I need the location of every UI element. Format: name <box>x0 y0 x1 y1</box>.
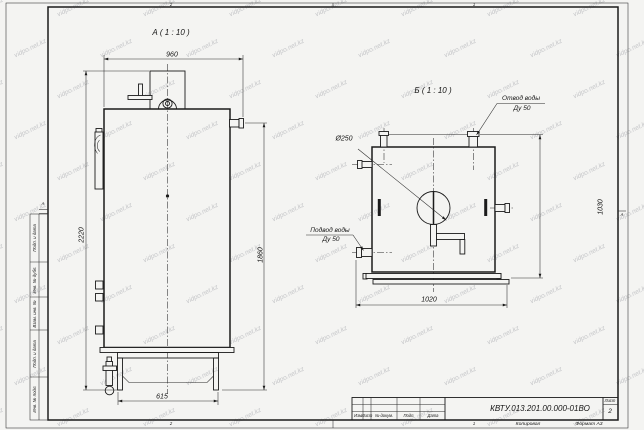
callout-inlet-line1: Подвод воды <box>310 227 349 234</box>
zone-bottom-left: 2 <box>170 422 172 426</box>
callout-outlet-line2: Ду 50 <box>514 105 531 112</box>
sheet-label: Лист <box>605 399 616 403</box>
margin-cell-inv-podl: Инв. № подл. <box>32 385 36 412</box>
col-izm: Изм <box>354 413 362 417</box>
view-b-title: Б ( 1 : 10 ) <box>414 87 451 95</box>
callout-inlet-line2: Ду 50 <box>323 237 340 244</box>
dim-1030: 1030 <box>598 199 605 215</box>
footer-format: Формат А3 <box>575 422 602 427</box>
dim-1020: 1020 <box>421 297 437 304</box>
doc-number: КВТУ.013.201.00.000-01ВО <box>490 405 590 413</box>
margin-cell-podp-i-data-1: Подп. и дата <box>32 224 36 252</box>
dim-diameter-250: Ø250 <box>335 136 352 143</box>
view-a-title: А ( 1 : 10 ) <box>152 29 189 37</box>
callout-outlet-line1: Отвод воды <box>502 96 540 103</box>
drawing-linework <box>0 0 644 430</box>
col-ndocum: № докум. <box>375 413 393 417</box>
view-b-linework <box>306 104 545 309</box>
sheet-number: 2 <box>608 408 612 415</box>
col-list: Лист <box>362 413 373 417</box>
zone-left-a: А <box>42 202 45 206</box>
margin-cell-inv-dubl: Инв. № дубл. <box>32 266 36 293</box>
margin-cell-vzam-inv: Взам. инв. № <box>32 300 36 327</box>
col-podp: Подп. <box>403 413 414 417</box>
col-data: Дата <box>427 413 438 417</box>
margin-cell-podp-i-data-2: Подп. и дата <box>32 340 36 368</box>
zone-right-a: А <box>621 213 624 217</box>
zone-top-left: 2 <box>170 3 172 7</box>
dim-1860: 1860 <box>258 247 265 263</box>
view-a-linework <box>83 55 267 405</box>
dim-960: 960 <box>166 51 178 58</box>
frame-linework <box>6 3 628 428</box>
zone-top-right: 1 <box>473 3 475 7</box>
dim-2220: 2220 <box>79 227 86 243</box>
drawing-sheet: vidpo.net.kzvidpo.net.kzvidpo.net.kzvidp… <box>0 0 644 430</box>
dim-615: 615 <box>156 394 168 401</box>
footer-copied: Копировал <box>516 422 541 427</box>
zone-bottom-right: 1 <box>473 422 475 426</box>
